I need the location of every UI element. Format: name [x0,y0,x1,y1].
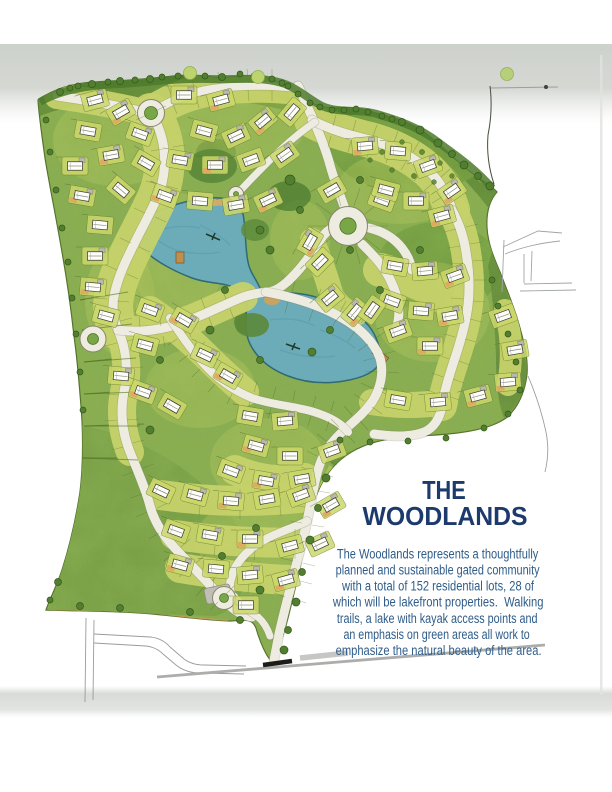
svg-text:THE: THE [422,477,466,505]
svg-text:The Woodlands represents a tho: The Woodlands represents a thoughtfully [337,546,539,562]
svg-text:planned and sustainable gated: planned and sustainable gated community [336,563,541,579]
svg-text:trails, a lake with kayak acce: trails, a lake with kayak access points … [337,611,538,627]
svg-text:with a total of 152 residentia: with a total of 152 residential lots, 28… [341,579,534,595]
svg-text:emphasize the natural beauty o: emphasize the natural beauty of the area… [336,643,542,659]
svg-text:which will be lakefront proper: which will be lakefront properties. Walk… [332,595,543,611]
svg-text:an emphasis on green areas all: an emphasis on green areas all work to [343,627,529,643]
svg-text:WOODLANDS: WOODLANDS [363,503,528,531]
